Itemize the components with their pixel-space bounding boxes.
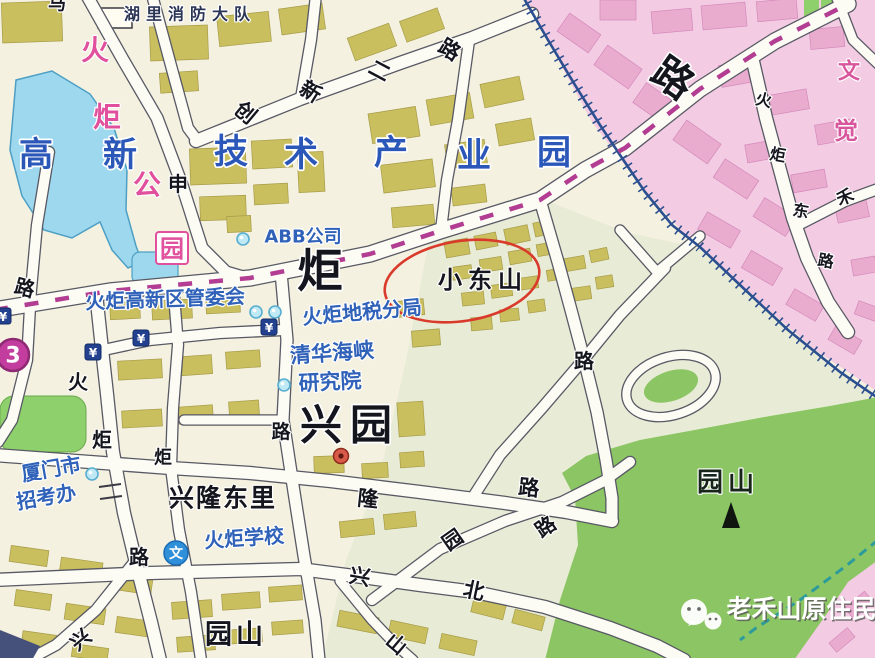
wechat-logo-eye (709, 618, 712, 621)
building (221, 592, 260, 611)
watermark-text: 老禾山原住民 (727, 595, 875, 624)
map-label: 兴隆东里 (169, 484, 277, 513)
map-canvas: ¥¥¥¥文3马创新二路申炬路火炬路炬路路路隆路园路兴北山兴火炬东路禾湖里消防大队… (0, 0, 875, 658)
map-label: 新 (103, 135, 137, 175)
map-screenshot: ¥¥¥¥文3马创新二路申炬路火炬路炬路路路隆路园路兴北山兴火炬东路禾湖里消防大队… (0, 0, 875, 658)
map-label: 兴园 (300, 401, 400, 450)
map-label: 湖里消防大队 (124, 5, 256, 24)
map-label: 研究院 (298, 368, 362, 395)
map-label: 公 (133, 169, 161, 202)
building (411, 329, 440, 347)
map-label: 火 (81, 34, 109, 67)
map-label: 高 (19, 135, 53, 175)
road-label: 路 (574, 349, 595, 373)
map-label: 产 (374, 133, 408, 173)
road-label: 东 (791, 200, 810, 221)
poi-dot-highlight (89, 471, 93, 475)
building (701, 2, 747, 30)
road-label: 路 (129, 545, 150, 569)
wechat-logo-bubble-small (705, 613, 722, 630)
building (391, 204, 435, 228)
map-label: 技 (214, 132, 248, 172)
building (600, 0, 636, 20)
road-label: 火 (68, 370, 89, 394)
map-label: 园山 (697, 468, 759, 498)
bank-icon-symbol: ¥ (137, 332, 146, 346)
building (595, 275, 614, 290)
building (451, 184, 487, 206)
building (397, 401, 425, 437)
bank-icon-symbol: ¥ (89, 346, 98, 360)
road-label: 路 (271, 420, 291, 443)
road-label: 路 (517, 475, 541, 501)
road-label: 马 (48, 0, 66, 15)
map-label: 园 (537, 133, 571, 173)
map-label: ABB公司 (264, 227, 341, 248)
map-label: 觉 (834, 117, 858, 145)
building (227, 215, 252, 232)
road-label: 炬 (768, 144, 787, 165)
building (362, 462, 389, 478)
poi-dot-highlight (240, 236, 244, 240)
wechat-logo-eye (715, 618, 718, 621)
bank-icon-symbol: ¥ (0, 310, 8, 324)
poi-dot-highlight (281, 382, 285, 386)
poi-dot-highlight (253, 309, 257, 313)
building (272, 620, 304, 635)
wechat-logo-bubble-big (681, 599, 707, 625)
route-badge-number: 3 (5, 344, 20, 369)
poi-dot-icon (86, 468, 98, 480)
building (527, 299, 546, 313)
road-label: 申 (168, 172, 188, 196)
poi-dot-highlight (272, 309, 276, 313)
road-label: 隆 (356, 486, 380, 512)
poi-dot-icon (237, 233, 249, 245)
building (651, 8, 693, 33)
building (253, 183, 288, 205)
road-label: 兴 (347, 563, 372, 590)
map-label: 小东山 (438, 266, 528, 294)
road-label: 炬 (154, 447, 172, 469)
bank-icon-symbol: ¥ (265, 321, 274, 335)
poi-dot-icon (278, 379, 290, 391)
wechat-logo-eye (687, 607, 691, 611)
map-label: 园 (160, 235, 184, 263)
school-icon-glyph: 文 (169, 545, 184, 562)
building (756, 0, 798, 22)
wechat-logo-eye (697, 607, 701, 611)
map-label: 术 (284, 135, 318, 175)
map-label: 园山 (205, 620, 267, 651)
road-label: 炬 (297, 244, 343, 298)
building (118, 359, 163, 380)
building (339, 518, 374, 537)
building (383, 511, 416, 529)
building (225, 350, 260, 369)
poi-dot-icon (250, 306, 262, 318)
map-label: 炬 (93, 101, 121, 134)
map-label: 文 (838, 59, 861, 85)
building (400, 451, 425, 468)
road-label: 炬 (92, 428, 112, 452)
building (122, 409, 163, 428)
map-label: 业 (457, 136, 491, 176)
poi-dot-icon (269, 306, 281, 318)
red-dot-center (338, 453, 343, 458)
building (269, 585, 303, 602)
